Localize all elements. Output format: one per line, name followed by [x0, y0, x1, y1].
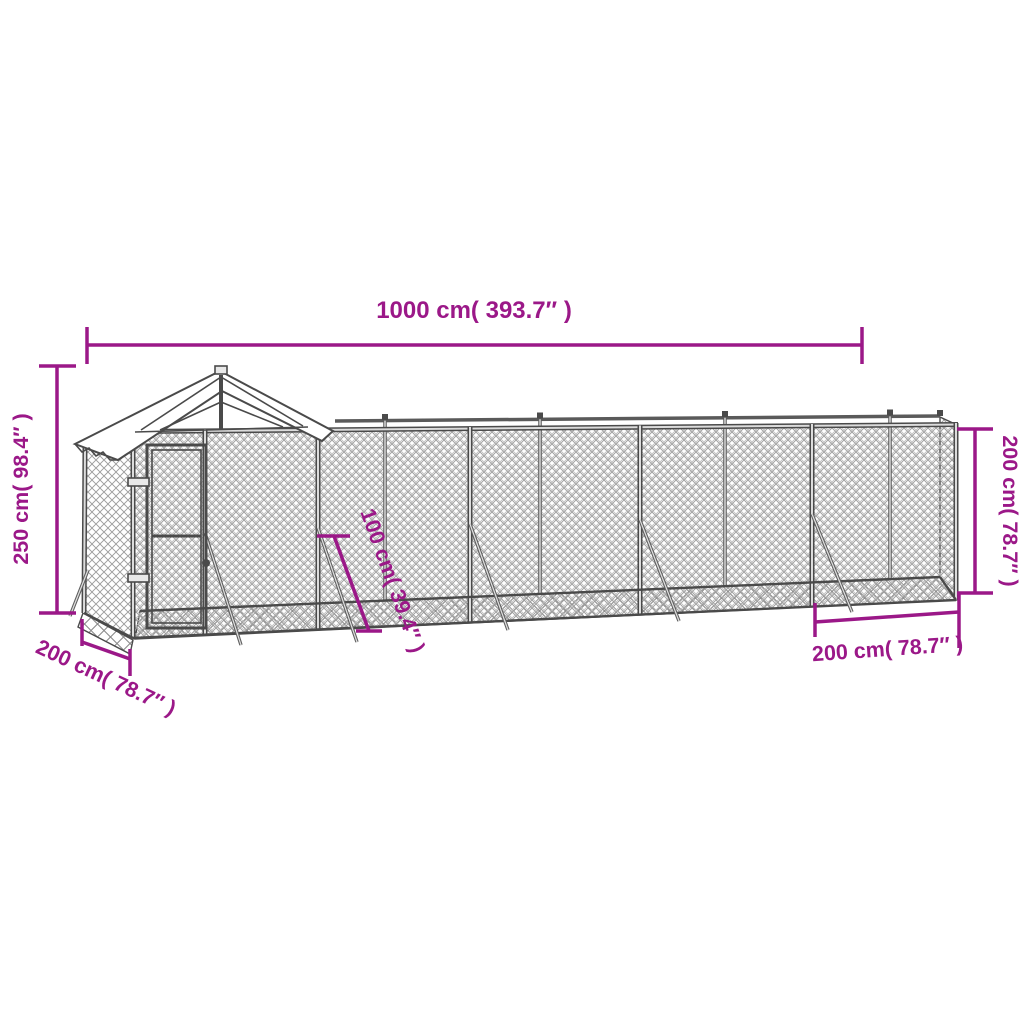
left-side-wall-mesh [84, 432, 133, 638]
roof-peak-cap [215, 366, 227, 374]
door-hinge-top [128, 478, 149, 486]
dimension-left-height-label: 250 cm( 98.4″ ) [9, 413, 33, 564]
door-latch [202, 559, 210, 567]
dimension-right-height-label: 200 cm( 78.7″ ) [998, 435, 1022, 586]
kennel-dimension-diagram: 1000 cm( 393.7″ ) 250 cm( 98.4″ ) 200 cm… [0, 0, 1024, 1024]
door-hinge-bottom [128, 574, 149, 582]
dimension-top-width-label: 1000 cm( 393.7″ ) [376, 297, 572, 324]
